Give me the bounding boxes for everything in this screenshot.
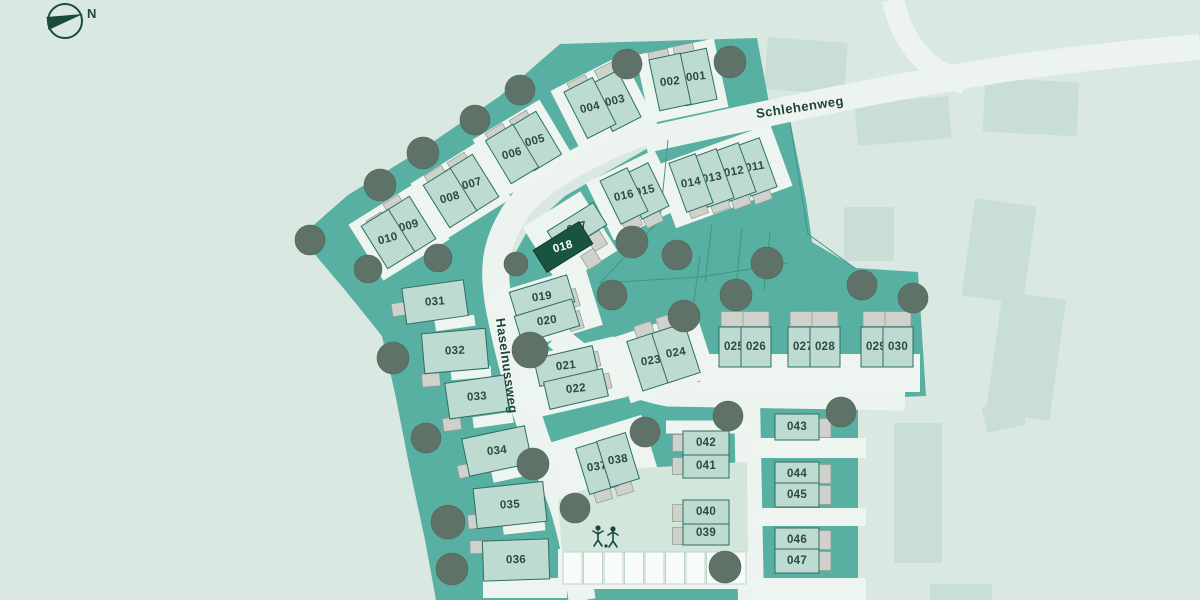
tree: [668, 300, 700, 332]
tree: [517, 448, 549, 480]
plot-041[interactable]: 041: [683, 454, 729, 478]
tree: [431, 505, 465, 539]
compass-north-label: N: [87, 6, 96, 21]
plot-045[interactable]: 045: [775, 483, 819, 507]
tree: [826, 397, 856, 427]
tree: [424, 244, 452, 272]
compass-needle: [47, 14, 84, 30]
existing-building: [986, 291, 1066, 421]
parking-stall: [666, 552, 685, 584]
plot-036[interactable]: 036: [482, 539, 549, 581]
garage: [421, 373, 440, 388]
tree: [407, 137, 439, 169]
plot-label: 002: [659, 75, 680, 89]
tree: [662, 240, 692, 270]
plot-label: 036: [506, 554, 526, 566]
parking-stall: [584, 552, 603, 584]
plot-label: 044: [787, 468, 807, 480]
garage: [812, 312, 838, 327]
tree: [436, 553, 468, 585]
plot-label: 042: [696, 437, 716, 449]
plot-label: 045: [787, 489, 807, 501]
plot-label: 032: [445, 345, 466, 358]
plot-046[interactable]: 046: [775, 528, 819, 552]
plot-label: 043: [787, 421, 807, 433]
existing-building: [894, 423, 942, 563]
tree: [713, 401, 743, 431]
plot-label: 041: [696, 460, 716, 472]
tree: [505, 75, 535, 105]
plot-label: 001: [685, 70, 707, 84]
driveway: [754, 508, 866, 526]
plot-032[interactable]: 032: [421, 328, 488, 373]
plot-label: 022: [565, 382, 586, 396]
parking-stall: [686, 552, 705, 584]
plot-043[interactable]: 043: [775, 414, 819, 440]
plot-label: 047: [787, 555, 807, 567]
tree: [560, 493, 590, 523]
driveway: [754, 578, 866, 600]
tree: [630, 417, 660, 447]
plot-label: 030: [888, 341, 908, 353]
garage: [743, 312, 769, 327]
plot-042[interactable]: 042: [683, 431, 729, 455]
plot-label: 034: [486, 444, 508, 458]
tree: [616, 226, 648, 258]
plot-label: 021: [555, 359, 577, 373]
plot-label: 026: [746, 341, 766, 353]
existing-building: [961, 198, 1036, 304]
tree: [847, 270, 877, 300]
compass: N: [47, 4, 97, 38]
tree: [709, 551, 741, 583]
tree: [295, 225, 325, 255]
tree: [354, 255, 382, 283]
plot-label: 039: [696, 527, 716, 539]
tree: [898, 283, 928, 313]
plot-label: 028: [815, 341, 835, 353]
plot-033[interactable]: 033: [445, 375, 509, 419]
parking-stall: [563, 552, 582, 584]
tree: [504, 252, 528, 276]
plot-035[interactable]: 035: [473, 481, 547, 528]
plot-030[interactable]: 030: [883, 327, 913, 367]
plot-label: 033: [467, 390, 488, 403]
plot-label: 046: [787, 534, 807, 546]
existing-building: [983, 78, 1080, 137]
plot-047[interactable]: 047: [775, 549, 819, 573]
plot-039[interactable]: 039: [683, 521, 729, 545]
tree: [512, 332, 548, 368]
tree: [364, 169, 396, 201]
plot-044[interactable]: 044: [775, 462, 819, 486]
plot-028[interactable]: 028: [810, 327, 840, 367]
tree: [612, 49, 642, 79]
site-plan: 0010020030040050060070080090100110120130…: [0, 0, 1200, 600]
tree: [751, 247, 783, 279]
tree: [714, 46, 746, 78]
road-north-spur: [893, 0, 965, 84]
tree: [460, 105, 490, 135]
existing-building: [844, 207, 894, 261]
parking-stall: [645, 552, 664, 584]
plot-label: 040: [696, 506, 716, 518]
plot-040[interactable]: 040: [683, 500, 729, 524]
existing-building: [930, 584, 992, 600]
plot-label: 031: [425, 295, 446, 308]
plot-label: 035: [500, 498, 521, 511]
tree: [597, 280, 627, 310]
site-plan-svg: 0010020030040050060070080090100110120130…: [0, 0, 1200, 600]
tree: [377, 342, 409, 374]
existing-building: [764, 37, 847, 94]
plot-026[interactable]: 026: [741, 327, 771, 367]
garage: [885, 312, 911, 327]
parking-stall: [604, 552, 623, 584]
tree: [411, 423, 441, 453]
driveway: [754, 438, 866, 458]
tree: [720, 279, 752, 311]
parking-stall: [625, 552, 644, 584]
